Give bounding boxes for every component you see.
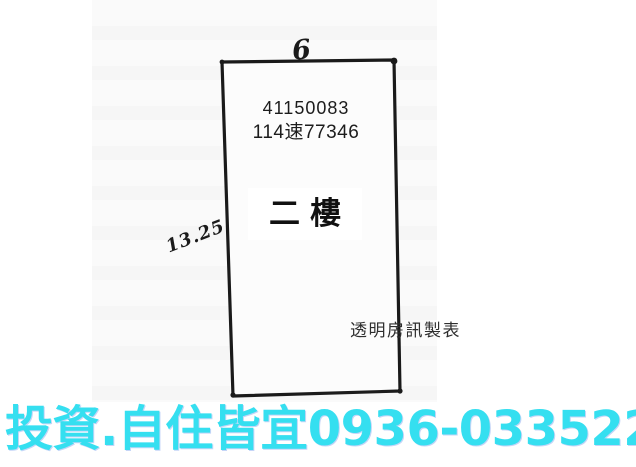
floor-label: 二樓 — [259, 199, 351, 230]
banner-phone-number: 0936-033522 — [308, 401, 636, 457]
floor-label-patch: 二樓 — [248, 188, 362, 240]
corner-ink-blob — [220, 60, 225, 65]
file-number: 114速77346 — [226, 120, 386, 146]
watermark-text: 透明房訊製表 — [350, 316, 461, 341]
banner-slogan: 投資.自住皆宜 — [5, 401, 308, 457]
corner-ink-blob — [391, 58, 398, 65]
dimension-top: 6 — [291, 36, 313, 65]
plot-id-block: 41150083 114速77346 — [226, 98, 386, 145]
parcel-number: 41150083 — [226, 98, 386, 120]
banner: 投資.自住皆宜0936-033522 — [5, 402, 635, 457]
scanned-floor-plan: 41150083 114速77346 二樓 6 13.25 透明房訊製表 投資.… — [0, 0, 636, 467]
corner-ink-blob — [397, 388, 402, 393]
corner-ink-blob — [230, 392, 235, 397]
